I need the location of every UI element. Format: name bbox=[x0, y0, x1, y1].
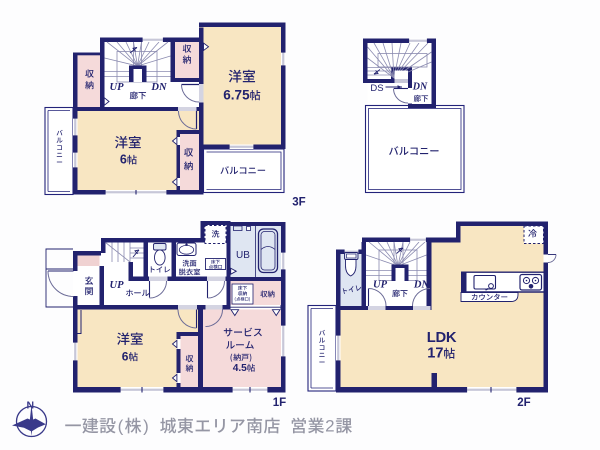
svg-text:DS: DS bbox=[370, 83, 383, 94]
svg-text:LDK: LDK bbox=[427, 330, 457, 346]
svg-text:): ) bbox=[143, 417, 149, 436]
svg-text:6: 6 bbox=[120, 153, 127, 167]
svg-text:2: 2 bbox=[325, 417, 334, 436]
svg-text:6: 6 bbox=[122, 349, 129, 363]
svg-text:UP: UP bbox=[110, 280, 125, 291]
svg-text:UB: UB bbox=[236, 250, 250, 261]
svg-text:DN: DN bbox=[412, 82, 428, 93]
svg-text:DN: DN bbox=[150, 82, 167, 93]
svg-text:UP: UP bbox=[373, 279, 388, 290]
svg-text:3F: 3F bbox=[292, 197, 305, 209]
svg-text:6.75: 6.75 bbox=[223, 87, 250, 102]
svg-text:17: 17 bbox=[427, 346, 443, 362]
svg-text:4.5: 4.5 bbox=[233, 363, 247, 374]
svg-text:2F: 2F bbox=[517, 397, 530, 409]
svg-text:DN: DN bbox=[413, 279, 430, 290]
svg-text:UP: UP bbox=[110, 82, 125, 93]
svg-text:1F: 1F bbox=[273, 397, 286, 409]
svg-text:N: N bbox=[27, 399, 35, 411]
svg-text:(: ( bbox=[118, 417, 124, 436]
